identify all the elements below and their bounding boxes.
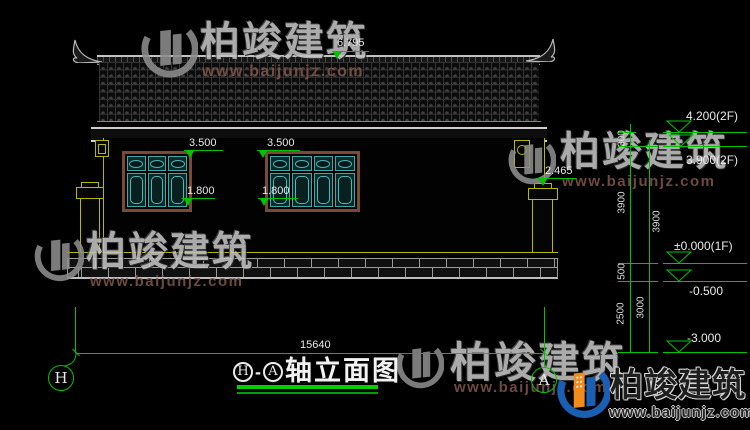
level-3900: 3.900(2F): [686, 153, 738, 167]
title-separator: -: [255, 363, 261, 381]
axis-bubble-left: H: [48, 365, 74, 391]
level-0000: ±0.000(1F): [674, 239, 733, 253]
dim-arrow-ridge: [333, 52, 341, 59]
axis-leader-right: [544, 353, 545, 367]
cad-elevation-drawing: { "brand": {"name": "柏竣建筑", "url": "www.…: [0, 0, 750, 430]
level-4200: 4.200(2F): [686, 109, 738, 123]
title-axis-left-bubble: H: [233, 362, 253, 382]
dim-window2-top: 3.500: [267, 137, 295, 149]
chain-outer-3900: 3900: [652, 204, 663, 240]
level-minus0500: -0.500: [689, 284, 723, 298]
level-minus3000: -3.000: [687, 331, 721, 345]
dim-ridge-height: 6.795: [337, 37, 365, 49]
chain-outer-3000: 3000: [636, 290, 647, 326]
drawing-title: H - A 轴立面图: [233, 358, 401, 385]
title-text: 轴立面图: [285, 358, 401, 385]
chain-inner-500: 500: [617, 254, 628, 290]
title-axis-right-bubble: A: [263, 362, 283, 382]
dim-window2-sill: 1.800: [262, 185, 290, 197]
chain-inner-300: 300: [617, 121, 628, 157]
site-logo: 柏竣建筑 www.baijunjz.com: [552, 358, 750, 428]
dim-chain-inner: [630, 124, 631, 353]
title-underline-thin: [237, 392, 378, 394]
site-logo-url-text: www.baijunjz.com: [609, 405, 750, 420]
site-logo-icon: [552, 360, 610, 426]
dim-chain-outer: [649, 140, 650, 353]
dim-line-total-width: [76, 353, 545, 354]
chain-inner-2500: 2500: [616, 296, 627, 332]
site-logo-brand-text: 柏竣建筑: [610, 368, 746, 401]
dim-total-width: 15640: [300, 339, 331, 351]
chain-inner-3900: 3900: [617, 185, 628, 221]
level-marker-icon: [666, 269, 692, 282]
title-underline-thick: [237, 385, 378, 389]
dim-window1-sill: 1.800: [187, 185, 215, 197]
level-marker-icon: [668, 134, 694, 147]
dim-window1-top: 3.500: [189, 137, 217, 149]
dim-side-wall: 2.465: [545, 165, 573, 177]
